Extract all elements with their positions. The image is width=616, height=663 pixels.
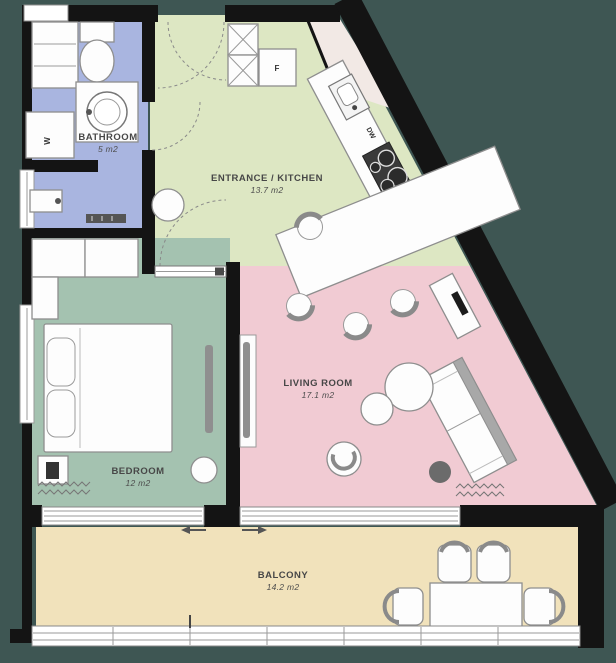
pillow-2: [47, 390, 75, 437]
bathroom-name: BATHROOM: [78, 132, 137, 143]
closet-1: [32, 239, 85, 277]
bed: [44, 324, 172, 452]
kitchen-name: ENTRANCE / KITCHEN: [211, 173, 323, 184]
bedroom-door: [155, 266, 226, 277]
toilet-tank: [80, 22, 114, 42]
balcony-left-wall: [22, 505, 32, 637]
bedroom-living-wall: [226, 262, 240, 510]
living-name: LIVING ROOM: [283, 378, 352, 389]
window-post-mid: [204, 505, 240, 527]
balcony-table: [430, 583, 522, 627]
stool: [191, 457, 217, 483]
kitchen-area: 13.7 m2: [251, 185, 284, 195]
floor-plan-canvas: W BATHROOM 5 m2 F DW: [0, 0, 616, 663]
top-wall-left: [68, 5, 158, 22]
pillow-1: [47, 338, 75, 386]
sliding-panel-living: [243, 342, 250, 438]
balcony-chair-1: [438, 542, 471, 582]
lamp-icon: [46, 462, 59, 479]
sink-basin-icon: [87, 92, 127, 132]
fridge-label: F: [275, 64, 280, 73]
floor-lamp: [429, 461, 451, 483]
bedroom-name: BEDROOM: [111, 466, 164, 477]
bedroom-area: 12 m2: [125, 478, 150, 488]
bathroom-wall-upper: [142, 22, 155, 102]
balcony-right-wall: [578, 505, 604, 648]
coffee-table-small: [361, 393, 393, 425]
closet-3: [32, 277, 58, 319]
left-wall: [22, 5, 32, 507]
washing-machine: [26, 112, 74, 158]
top-left-light-wall: [24, 5, 68, 21]
living-area: 17.1 m2: [302, 390, 335, 400]
balcony-name: BALCONY: [258, 570, 309, 581]
shower: [32, 22, 78, 88]
balcony-area: 14.2 m2: [267, 582, 300, 592]
window-post-right: [460, 505, 580, 527]
floor-plan: W BATHROOM 5 m2 F DW: [0, 0, 616, 663]
closet-2: [85, 239, 138, 277]
balcony-chair-2: [477, 542, 510, 582]
bathroom-area: 5 m2: [98, 144, 118, 154]
toilet-icon: [80, 40, 114, 82]
faucet-icon: [86, 109, 92, 115]
sliding-panel-bedroom: [205, 345, 213, 433]
bathroom-bottom-wall: [22, 228, 144, 238]
top-wall-right: [225, 5, 340, 22]
pouf: [152, 189, 184, 221]
washing-machine-label: W: [43, 137, 52, 145]
